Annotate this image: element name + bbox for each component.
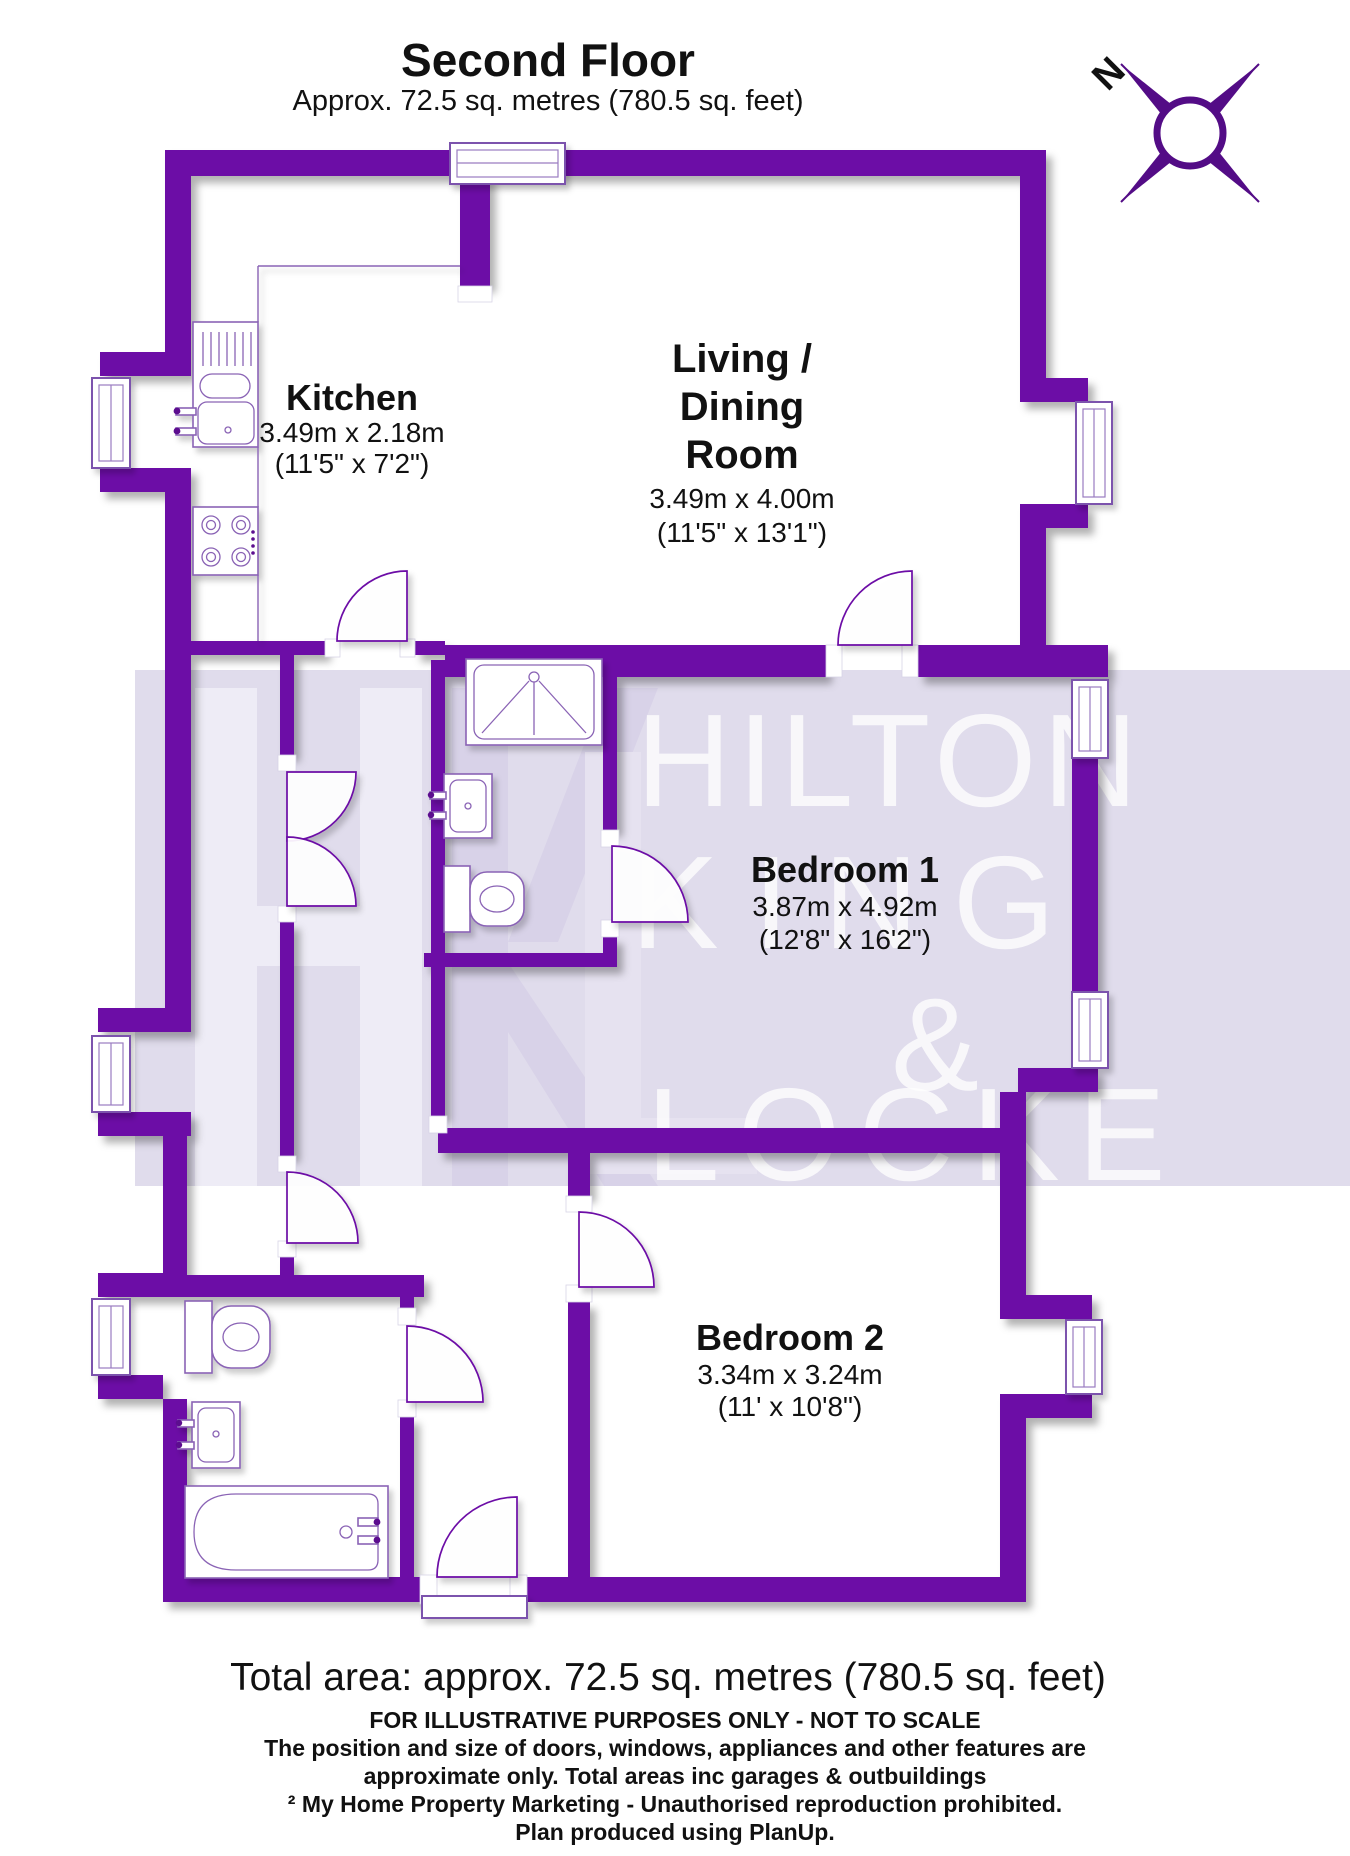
kitchen-metric: 3.49m x 2.18m (259, 417, 444, 448)
bedroom1-name: Bedroom 1 (751, 849, 939, 890)
kitchen-imperial: (11'5" x 7'2") (275, 448, 430, 479)
bath-icon (185, 1486, 388, 1578)
page-subtitle: Approx. 72.5 sq. metres (780.5 sq. feet) (293, 85, 804, 117)
hob-icon (193, 507, 258, 575)
produced-text: Plan produced using PlanUp. (515, 1819, 834, 1845)
kitchen-name: Kitchen (286, 377, 418, 418)
total-area-text: Total area: approx. 72.5 sq. metres (780… (230, 1656, 1106, 1699)
window-right-living (1076, 402, 1112, 504)
window-bedroom2 (1066, 1320, 1102, 1394)
position-note-text: The position and size of doors, windows,… (264, 1735, 1086, 1761)
header: Second Floor Approx. 72.5 sq. metres (78… (293, 34, 804, 117)
floorplan-canvas: HILTON KING & LOCKE (0, 0, 1350, 1856)
bedroom2-imperial: (11' x 10'8") (718, 1391, 863, 1422)
window-left-bathroom (92, 1299, 130, 1375)
shower-icon (466, 659, 602, 745)
door-living (838, 571, 912, 645)
bedroom1-metric: 3.87m x 4.92m (752, 891, 937, 922)
bedroom2-metric: 3.34m x 3.24m (697, 1359, 882, 1390)
footer: Total area: approx. 72.5 sq. metres (780… (230, 1656, 1106, 1845)
compass-north-label: N (1084, 49, 1133, 98)
door-bathroom (407, 1326, 483, 1402)
watermark: HILTON KING & LOCKE (135, 670, 1350, 1208)
window-left-kitchen (92, 378, 130, 468)
label-bedroom1: Bedroom 1 3.87m x 4.92m (12'8" x 16'2") (751, 849, 939, 955)
watermark-line-1: HILTON (636, 687, 1144, 834)
window-top-living (450, 143, 565, 184)
living-metric: 3.49m x 4.00m (649, 483, 834, 514)
door-kitchen (337, 571, 407, 641)
door-bedroom2 (579, 1212, 654, 1287)
living-imperial: (11'5" x 13'1") (657, 517, 827, 548)
living-line3: Room (685, 433, 798, 477)
label-living: Living / Dining Room 3.49m x 4.00m (11'5… (649, 337, 834, 548)
entrance-threshold (422, 1596, 527, 1618)
window-left-middle (92, 1036, 130, 1112)
window-bedroom1-upper (1072, 680, 1108, 758)
bedroom1-imperial: (12'8" x 16'2") (759, 924, 931, 955)
approx-note-text: approximate only. Total areas inc garage… (364, 1763, 987, 1789)
floorplan-page: HILTON KING & LOCKE (0, 0, 1350, 1856)
disclaimer-text: FOR ILLUSTRATIVE PURPOSES ONLY - NOT TO … (369, 1707, 980, 1733)
door-entrance (437, 1497, 517, 1577)
label-kitchen: Kitchen 3.49m x 2.18m (11'5" x 7'2") (259, 377, 444, 479)
living-line2: Dining (680, 385, 804, 429)
page-title: Second Floor (401, 34, 695, 86)
label-bedroom2: Bedroom 2 3.34m x 3.24m (11' x 10'8") (696, 1317, 884, 1422)
copyright-text: ² My Home Property Marketing - Unauthori… (288, 1791, 1062, 1817)
window-bedroom1-lower (1072, 992, 1108, 1068)
living-line1: Living / (672, 337, 812, 381)
compass-icon: N (1084, 49, 1259, 202)
toilet-upper-icon (444, 866, 524, 932)
toilet-lower-icon (185, 1301, 270, 1373)
bedroom2-name: Bedroom 2 (696, 1317, 884, 1358)
